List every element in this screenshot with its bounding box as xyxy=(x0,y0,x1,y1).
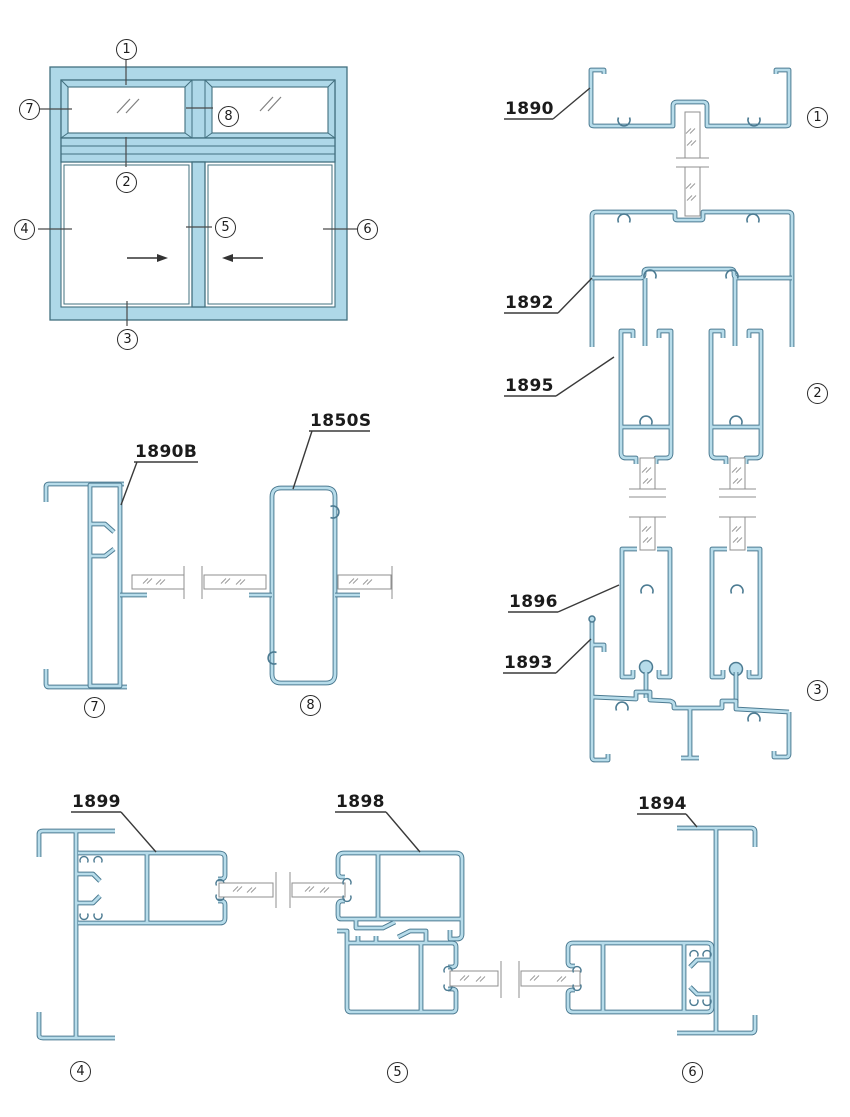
fixed-pane-left xyxy=(68,87,185,133)
section-detail-5-meeting-stiles xyxy=(337,853,580,1012)
diagram-canvas xyxy=(0,0,850,1117)
callout-7-detail: 7 xyxy=(84,697,105,718)
part-label-1895: 1895 xyxy=(505,377,554,395)
section-detail-6-right-jamb xyxy=(568,827,755,1033)
window-elevation xyxy=(38,60,358,326)
diagram-page: 1890 1892 1895 1896 1893 1890B 1850S 189… xyxy=(0,0,850,1117)
transom xyxy=(61,138,335,162)
section-detail-7-fixed-jamb xyxy=(46,484,266,687)
callout-6-elevation: 6 xyxy=(357,219,378,240)
callout-3-elevation: 3 xyxy=(117,329,138,350)
callout-3-detail: 3 xyxy=(807,680,828,701)
callout-8-detail: 8 xyxy=(300,695,321,716)
meeting-stile xyxy=(192,162,205,307)
roller-left xyxy=(640,661,653,674)
section-detail-1-head-frame xyxy=(591,70,789,216)
callout-2-elevation: 2 xyxy=(116,172,137,193)
part-label-1892: 1892 xyxy=(505,294,554,312)
part-label-1899: 1899 xyxy=(72,793,121,811)
callout-4-elevation: 4 xyxy=(14,219,35,240)
part-label-1850s: 1850S xyxy=(310,412,372,430)
callout-1-detail: 1 xyxy=(807,107,828,128)
part-label-1894: 1894 xyxy=(638,795,687,813)
part-label-1890: 1890 xyxy=(505,100,554,118)
callout-4-detail: 4 xyxy=(70,1061,91,1082)
part-label-1890b: 1890B xyxy=(135,443,197,461)
section-detail-2-transom xyxy=(592,212,792,497)
part-label-1893: 1893 xyxy=(504,654,553,672)
section-detail-8-fixed-mullion xyxy=(249,488,392,683)
callout-2-detail: 2 xyxy=(807,383,828,404)
callout-7-elevation: 7 xyxy=(19,99,40,120)
callout-5-detail: 5 xyxy=(387,1062,408,1083)
section-detail-4-left-jamb xyxy=(39,831,345,1038)
callout-1-elevation: 1 xyxy=(116,39,137,60)
section-detail-3-sill xyxy=(589,517,789,760)
part-label-1898: 1898 xyxy=(336,793,385,811)
callout-5-elevation: 5 xyxy=(215,217,236,238)
callout-8-elevation: 8 xyxy=(218,106,239,127)
callout-6-detail: 6 xyxy=(682,1062,703,1083)
part-label-1896: 1896 xyxy=(509,593,558,611)
